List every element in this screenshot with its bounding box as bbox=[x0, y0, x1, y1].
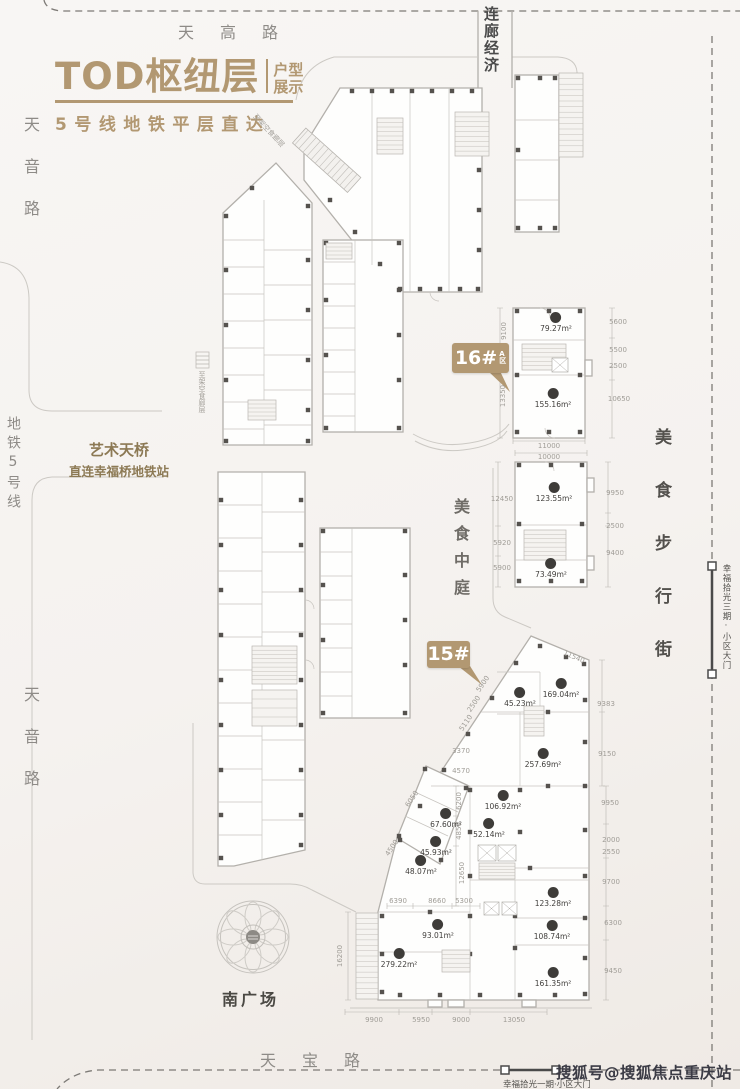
dimension-label: 11000 bbox=[538, 442, 560, 450]
dimension-label: 10000 bbox=[538, 453, 560, 461]
unit-area-label: 155.16m² bbox=[535, 400, 572, 409]
unit-marker: 123.55m² bbox=[536, 482, 573, 503]
dimension-label: 13350 bbox=[499, 385, 507, 407]
floorplan-page: TOD枢纽层 户型 展示 5号线地铁平层直达 天高路 天宝路 天音路 天音路 地… bbox=[0, 0, 740, 1089]
dimension-label: 13050 bbox=[503, 1016, 525, 1024]
title-underline bbox=[55, 100, 293, 103]
gate-south-label: 幸福拾光一期·小区大门 bbox=[503, 1078, 591, 1089]
dimension-label: 9383 bbox=[597, 700, 615, 708]
dimension-label: 4570 bbox=[452, 767, 470, 775]
dimension-label: 2550 bbox=[602, 848, 620, 856]
dimension-label: 9150 bbox=[598, 750, 616, 758]
unit-number-badge-icon bbox=[432, 919, 443, 930]
dimension-label: 9100 bbox=[500, 322, 508, 340]
art-bridge-note: 艺术天桥 直连幸福桥地铁站 bbox=[40, 439, 198, 480]
unit-marker: 169.04m² bbox=[543, 678, 580, 699]
unit-area-label: 48.07m² bbox=[405, 867, 437, 876]
title-sub-bottom: 展示 bbox=[273, 79, 303, 96]
unit-number-badge-icon bbox=[548, 388, 559, 399]
callout-16-zone-qu: 区 bbox=[499, 358, 506, 365]
callout-building-15: 15# bbox=[427, 641, 470, 668]
corridor-economy-label: 连廊经济 bbox=[481, 6, 502, 74]
unit-number-badge-icon bbox=[549, 482, 560, 493]
dimension-label: 10650 bbox=[608, 395, 630, 403]
dimension-label: 9900 bbox=[365, 1016, 383, 1024]
dimension-label: 5900 bbox=[493, 564, 511, 572]
unit-number-badge-icon bbox=[550, 312, 561, 323]
callout-16-number: 16# bbox=[455, 349, 497, 368]
unit-marker: 108.74m² bbox=[534, 920, 571, 941]
unit-number-badge-icon bbox=[498, 790, 509, 801]
unit-marker: 93.01m² bbox=[422, 919, 454, 940]
dimension-label: 6390 bbox=[389, 897, 407, 905]
dimension-label: 5950 bbox=[412, 1016, 430, 1024]
unit-area-label: 52.14m² bbox=[473, 830, 505, 839]
dimension-label: 5300 bbox=[455, 897, 473, 905]
ramp-note-vertical: 至架空食廊层 bbox=[197, 371, 207, 413]
unit-number-badge-icon bbox=[514, 687, 525, 698]
unit-marker: 161.35m² bbox=[535, 967, 572, 988]
dimension-label: 6300 bbox=[604, 919, 622, 927]
stair-icon bbox=[196, 352, 209, 368]
dimension-label: 12450 bbox=[491, 495, 513, 503]
unit-area-label: 161.35m² bbox=[535, 979, 572, 988]
dimension-label: 5920 bbox=[493, 539, 511, 547]
unit-marker: 73.49m² bbox=[535, 558, 567, 579]
dimension-label: 12650 bbox=[458, 862, 466, 884]
road-label-tiangao: 天高路 bbox=[178, 19, 304, 43]
unit-area-label: 169.04m² bbox=[543, 690, 580, 699]
callout-building-16A: 16# A 区 bbox=[452, 343, 509, 373]
dimension-label: 16200 bbox=[336, 945, 344, 967]
unit-area-label: 108.74m² bbox=[534, 932, 571, 941]
art-bridge-line1: 艺术天桥 bbox=[40, 439, 198, 460]
unit-number-badge-icon bbox=[547, 920, 558, 931]
food-atrium-label: 美食中庭 bbox=[448, 498, 472, 606]
unit-area-label: 106.92m² bbox=[485, 802, 522, 811]
unit-area-label: 279.22m² bbox=[381, 960, 418, 969]
unit-marker: 67.60m² bbox=[430, 808, 462, 829]
unit-number-badge-icon bbox=[483, 818, 494, 829]
dimension-label: 2000 bbox=[602, 836, 620, 844]
south-plaza-label: 南广场 bbox=[222, 986, 279, 1010]
unit-marker: 155.16m² bbox=[535, 388, 572, 409]
unit-number-badge-icon bbox=[556, 678, 567, 689]
dimension-label: 9950 bbox=[606, 489, 624, 497]
dimension-label: 9400 bbox=[606, 549, 624, 557]
title-divider bbox=[266, 59, 268, 93]
unit-area-label: 123.28m² bbox=[535, 899, 572, 908]
floorplan-svg bbox=[0, 0, 740, 1089]
unit-area-label: 257.69m² bbox=[525, 760, 562, 769]
page-title: TOD枢纽层 bbox=[55, 58, 259, 95]
dimension-label: 2500 bbox=[609, 362, 627, 370]
dimension-label: 8660 bbox=[428, 897, 446, 905]
callout-15-number: 15# bbox=[427, 645, 469, 664]
road-label-tianyin-lower: 天音路 bbox=[18, 686, 42, 812]
unit-number-badge-icon bbox=[440, 808, 451, 819]
dimension-label: 5500 bbox=[609, 346, 627, 354]
dimension-label: 3370 bbox=[452, 747, 470, 755]
unit-marker: 45.23m² bbox=[504, 687, 536, 708]
dimension-label: 9000 bbox=[452, 1016, 470, 1024]
unit-area-label: 123.55m² bbox=[536, 494, 573, 503]
unit-area-label: 73.49m² bbox=[535, 570, 567, 579]
art-bridge-line2: 直连幸福桥地铁站 bbox=[40, 461, 198, 480]
unit-marker: 123.28m² bbox=[535, 887, 572, 908]
unit-area-label: 79.27m² bbox=[540, 324, 572, 333]
food-street-label: 美食步行街 bbox=[649, 428, 674, 693]
unit-number-badge-icon bbox=[538, 748, 549, 759]
unit-number-badge-icon bbox=[548, 887, 559, 898]
unit-area-label: 45.23m² bbox=[504, 699, 536, 708]
dimension-label: 5600 bbox=[609, 318, 627, 326]
metro-line5-label: 地铁5号线 bbox=[3, 416, 23, 513]
unit-marker: 48.07m² bbox=[405, 855, 437, 876]
unit-area-label: 67.60m² bbox=[430, 820, 462, 829]
title-sub-top: 户型 bbox=[273, 62, 303, 79]
unit-marker: 79.27m² bbox=[540, 312, 572, 333]
road-label-tianyin-upper: 天音路 bbox=[18, 116, 42, 242]
road-label-tianbao: 天宝路 bbox=[260, 1047, 386, 1071]
unit-marker: 52.14m² bbox=[473, 818, 505, 839]
unit-number-badge-icon bbox=[415, 855, 426, 866]
dimension-label: 2500 bbox=[606, 522, 624, 530]
unit-number-badge-icon bbox=[394, 948, 405, 959]
gate-east-label: 幸福拾光三期·小区大门 bbox=[720, 564, 732, 670]
south-plaza-circle bbox=[217, 901, 289, 973]
unit-marker: 257.69m² bbox=[525, 748, 562, 769]
unit-number-badge-icon bbox=[548, 967, 559, 978]
unit-area-label: 93.01m² bbox=[422, 931, 454, 940]
dimension-label: 9700 bbox=[602, 878, 620, 886]
unit-number-badge-icon bbox=[430, 836, 441, 847]
unit-marker: 279.22m² bbox=[381, 948, 418, 969]
dimension-label: 9450 bbox=[604, 967, 622, 975]
unit-marker: 106.92m² bbox=[485, 790, 522, 811]
unit-marker: 45.93m² bbox=[420, 836, 452, 857]
unit-number-badge-icon bbox=[545, 558, 556, 569]
dimension-label: 9950 bbox=[601, 799, 619, 807]
